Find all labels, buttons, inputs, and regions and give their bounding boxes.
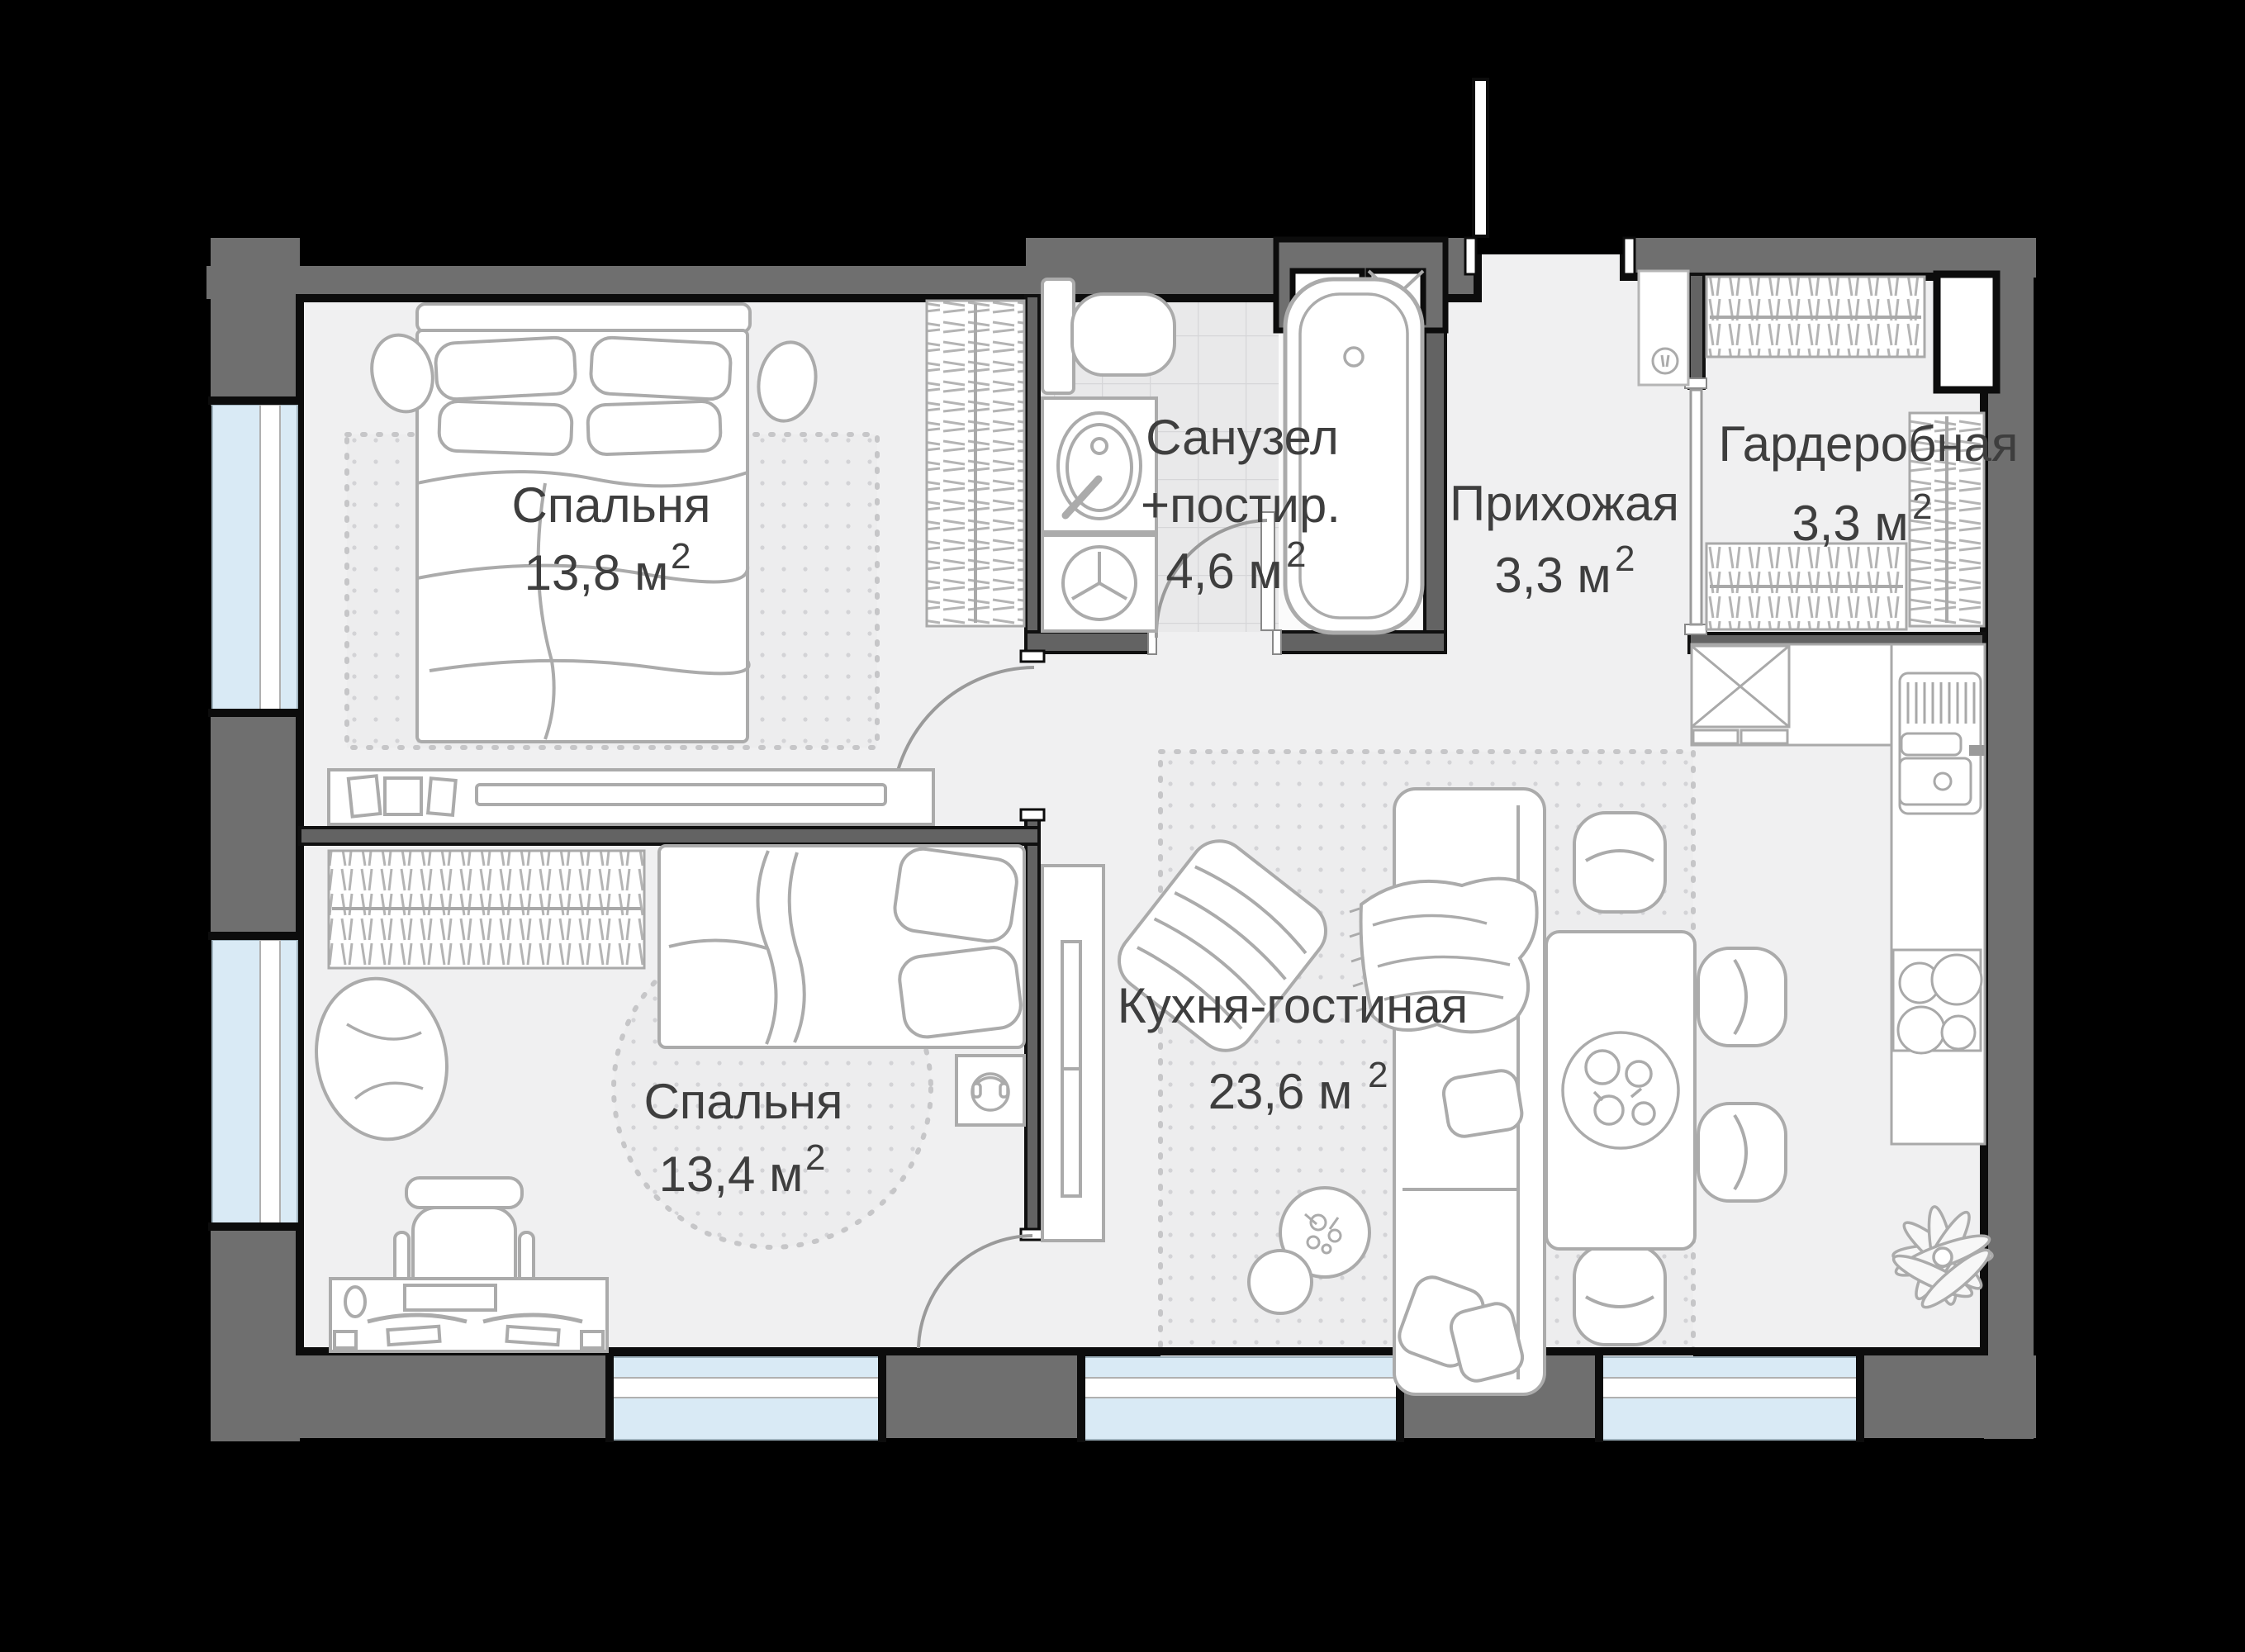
room-area-bedroom-1: 13,8 м	[524, 545, 669, 601]
room-label-wardrobe: Гардеробная	[1719, 416, 2019, 472]
dining-chair	[1698, 1104, 1786, 1201]
room-area-wardrobe: 3,3 м	[1792, 496, 1908, 551]
office-desk	[330, 1279, 607, 1351]
single-bed	[659, 846, 1024, 1047]
room-label-kitchen-living: Кухня-гостиная	[1118, 978, 1468, 1033]
window-bedroom-2	[208, 932, 301, 1231]
door-viewer-icon	[1653, 349, 1678, 373]
room-area-sup-hallway: 2	[1615, 539, 1635, 579]
wardrobe-corner-niche	[1937, 274, 1996, 390]
room-label-hallway: Прихожая	[1450, 476, 1679, 531]
room-area-bedroom-2: 13,4 м	[659, 1146, 804, 1202]
dining-chair	[1574, 813, 1665, 912]
dining-chair	[1574, 1246, 1665, 1345]
wardrobe-rack-top	[1706, 277, 1925, 357]
dining-table	[1546, 932, 1695, 1249]
nightstand-headphones	[956, 1056, 1024, 1125]
floor-plan-screen: Спальня 13,8 м 2 Санузел +постир. 4,6 м …	[0, 0, 2245, 1652]
room-label-bedroom-1: Спальня	[511, 477, 710, 533]
entrance-door-leaf	[1474, 79, 1488, 236]
floor-plan: Спальня 13,8 м 2 Санузел +постир. 4,6 м …	[0, 0, 2245, 1652]
dining-chair	[1698, 948, 1786, 1046]
tv-icon	[477, 785, 885, 805]
window-bedroom-1	[208, 396, 301, 717]
room-area-sup-bedroom-2: 2	[805, 1137, 825, 1178]
table-plate-decor	[1563, 1032, 1678, 1148]
headphones-icon	[972, 1074, 1009, 1110]
tv-console-bedroom-1	[329, 770, 933, 824]
window-bottom-right	[1595, 1353, 1864, 1442]
tv-console-living	[1042, 866, 1104, 1241]
wardrobe-rack-bedroom-2	[329, 851, 644, 968]
wardrobe-rack-bottom	[1706, 544, 1906, 629]
room-area-sup-kitchen-living: 2	[1368, 1055, 1388, 1095]
washing-machine	[1042, 535, 1156, 631]
room-label-bathroom-line2: +постир.	[1141, 477, 1341, 533]
kitchen-sink-unit	[1900, 673, 1985, 814]
window-bottom-center	[1077, 1353, 1404, 1442]
room-area-sup-bathroom: 2	[1286, 534, 1306, 575]
entry-cabinet	[1639, 271, 1688, 385]
wardrobe-door-leaf	[1691, 390, 1702, 624]
room-area-hallway: 3,3 м	[1494, 548, 1611, 603]
room-area-sup-bedroom-1: 2	[671, 536, 691, 577]
faucet-icon	[1969, 745, 1985, 756]
room-label-bedroom-2: Спальня	[643, 1074, 842, 1129]
cooktop	[1893, 950, 1982, 1053]
room-area-bathroom: 4,6 м	[1165, 544, 1282, 599]
window-bottom-left	[605, 1353, 886, 1442]
wardrobe-rack-bedroom-1	[927, 301, 1024, 626]
room-label-bathroom: Санузел	[1146, 410, 1339, 465]
room-area-kitchen-living: 23,6 м	[1208, 1064, 1353, 1119]
room-area-sup-wardrobe: 2	[1912, 487, 1932, 527]
bathroom-sink	[1042, 398, 1156, 532]
